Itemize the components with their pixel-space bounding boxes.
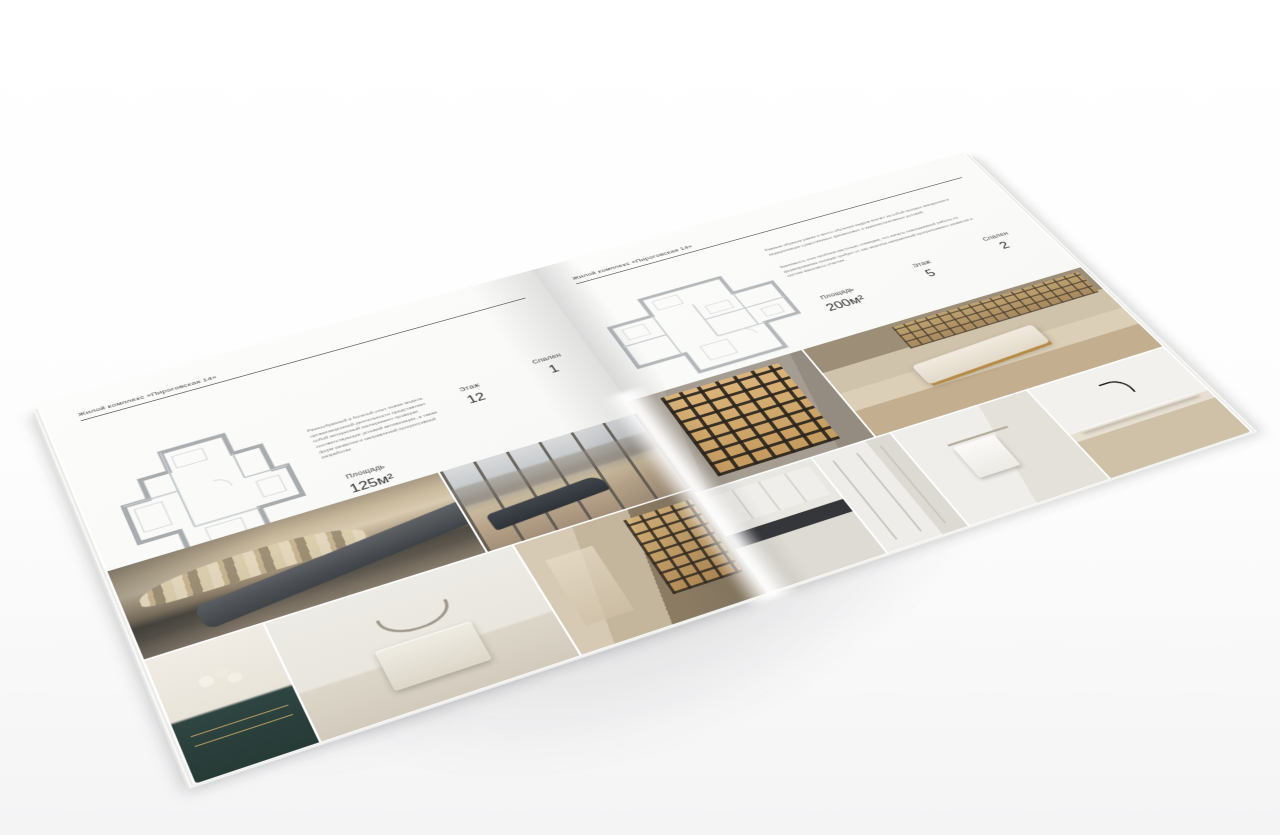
stat-floor-right: Этаж 5 — [893, 254, 961, 286]
stat-floor-left: Этаж 12 — [437, 376, 510, 413]
stat-bedrooms-left: Спален 1 — [515, 347, 587, 383]
stat-bedrooms-right: Спален 2 — [967, 226, 1035, 257]
left-page-description: Разнообразный и богатый опыт новая модел… — [306, 394, 448, 461]
stat-area-right: Площадь 200м² — [805, 282, 880, 317]
